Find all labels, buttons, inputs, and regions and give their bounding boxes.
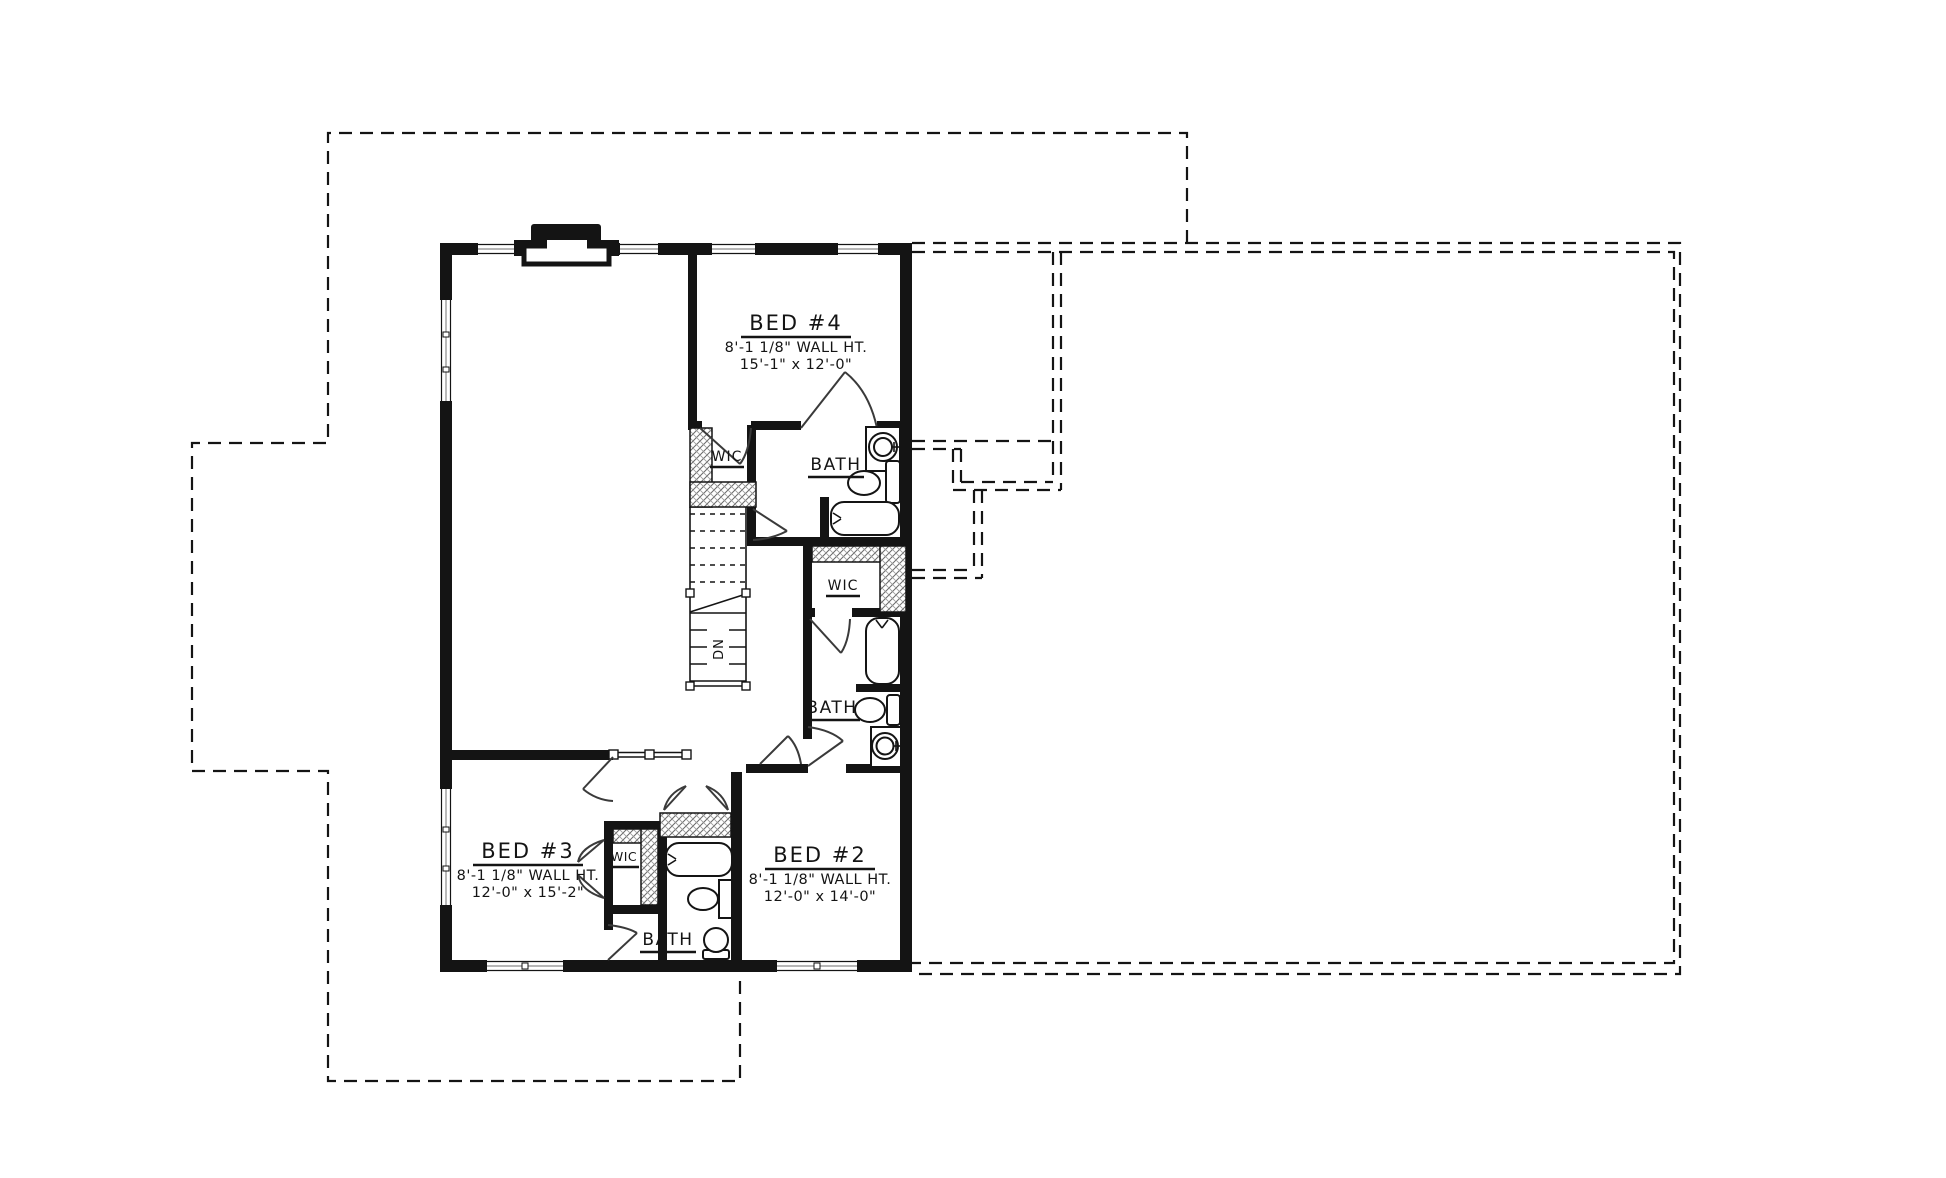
bed3-size: 12'-0" x 15'-2" <box>472 885 584 901</box>
stair-break-line <box>690 594 746 612</box>
room-label-bed3: BED #3 8'-1 1/8" WALL HT. 12'-0" x 15'-2… <box>457 839 600 901</box>
window <box>478 243 516 255</box>
toilet <box>703 928 729 959</box>
bathtub <box>866 618 899 684</box>
door-swing <box>760 736 801 764</box>
bathtub <box>831 502 899 535</box>
wic-bed4-label: WIC <box>712 449 743 465</box>
door-swing <box>753 509 787 540</box>
loft-railing <box>609 750 691 759</box>
door-swing <box>801 372 877 428</box>
bed4-size: 15'-1" x 12'-0" <box>740 357 852 373</box>
roof-outline-dashed <box>192 133 1680 1081</box>
bath-bed3-label: BATH <box>642 930 693 950</box>
window <box>620 243 658 255</box>
bed2-wall-height: 8'-1 1/8" WALL HT. <box>749 872 892 888</box>
bed4-title: BED #4 <box>749 311 842 335</box>
toilet <box>855 695 900 725</box>
closet-hatch-walls <box>613 428 906 905</box>
window <box>487 960 563 972</box>
wic-bed2-label: WIC <box>828 578 859 594</box>
roof-outline-right-inner <box>912 252 1674 963</box>
newel-post <box>742 682 750 690</box>
stairs-down-label: DN <box>712 638 727 660</box>
wall-loft-south <box>440 750 613 760</box>
bath-bed4-label: BATH <box>810 455 861 475</box>
roof-notch-dashed <box>912 252 1061 578</box>
bathtub <box>666 843 732 876</box>
window <box>712 243 755 255</box>
door-swing <box>583 757 613 801</box>
wic-bed3-label: WIC <box>611 849 637 864</box>
bed4-wall-height: 8'-1 1/8" WALL HT. <box>725 340 868 356</box>
window <box>440 785 452 909</box>
newel-post <box>686 589 694 597</box>
wall-bed4-west <box>688 255 697 425</box>
door-swing <box>608 925 637 960</box>
chimney <box>514 224 619 264</box>
wall-bath1-south <box>748 537 906 546</box>
window <box>777 960 857 972</box>
staircase: DN <box>686 507 750 690</box>
roof-outline-right-outer <box>912 243 1680 974</box>
newel-post <box>742 589 750 597</box>
bath-bed2-label: BATH <box>806 698 857 718</box>
sink <box>688 880 732 918</box>
room-label-bed2: BED #2 8'-1 1/8" WALL HT. 12'-0" x 14'-0… <box>749 843 892 905</box>
bed3-wall-height: 8'-1 1/8" WALL HT. <box>457 868 600 884</box>
room-label-bed4: BED #4 8'-1 1/8" WALL HT. 15'-1" x 12'-0… <box>725 311 868 373</box>
door-swing <box>810 619 850 653</box>
window <box>440 296 452 405</box>
window <box>838 243 878 255</box>
sink <box>871 727 901 767</box>
floor-plan-sheet: DN <box>0 0 1946 1178</box>
door-swing-double <box>664 786 728 810</box>
floor-plan-drawing: DN <box>0 0 1946 1178</box>
newel-post <box>686 682 694 690</box>
door-swing <box>808 727 843 766</box>
bed2-title: BED #2 <box>773 843 866 867</box>
bed2-size: 12'-0" x 14'-0" <box>764 889 876 905</box>
bed3-title: BED #3 <box>481 839 574 863</box>
